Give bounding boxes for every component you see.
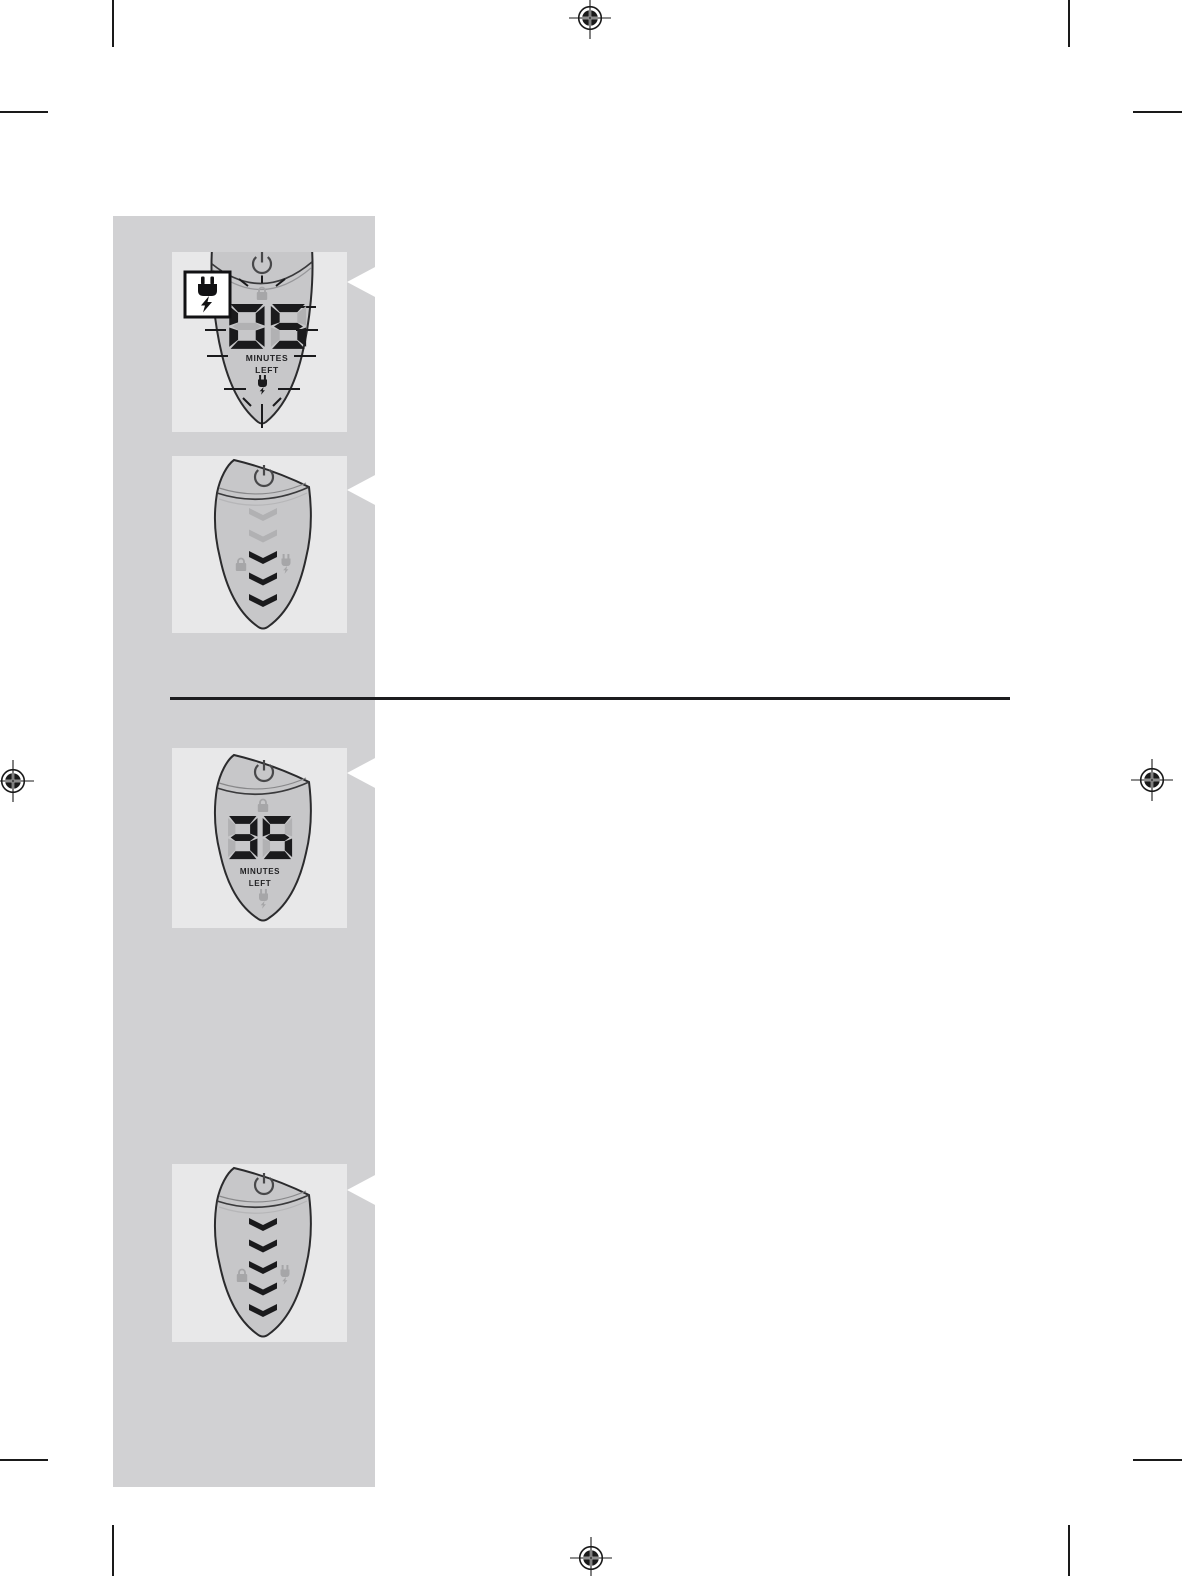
shaver-handle-illustration xyxy=(172,1164,347,1342)
section-divider-rule xyxy=(170,697,1010,700)
shaver-display-closeup-illustration: MINUTES LEFT xyxy=(172,252,347,432)
callout-pointer xyxy=(347,266,377,298)
minutes-label: MINUTES xyxy=(240,867,280,876)
left-label: LEFT xyxy=(255,365,279,375)
crop-mark-top-left-horizontal xyxy=(0,111,48,113)
crop-mark-top-left-vertical xyxy=(112,0,114,47)
minutes-label: MINUTES xyxy=(246,353,288,363)
crop-mark-bottom-right-vertical xyxy=(1068,1525,1070,1576)
illustration-charge-level-partial xyxy=(172,456,347,633)
crop-mark-bottom-left-vertical xyxy=(112,1525,114,1576)
registration-mark-bottom xyxy=(569,1536,613,1576)
left-label: LEFT xyxy=(249,879,271,888)
callout-pointer xyxy=(347,1174,377,1206)
illustration-display-flashing: MINUTES LEFT xyxy=(172,252,347,432)
illustration-display-35: MINUTES LEFT xyxy=(172,748,347,928)
callout-pointer xyxy=(347,757,377,789)
crop-mark-top-right-vertical xyxy=(1068,0,1070,47)
shaver-handle-illustration xyxy=(172,456,347,633)
shaver-display-illustration: MINUTES LEFT xyxy=(172,748,347,928)
registration-mark-left xyxy=(0,759,35,803)
callout-pointer xyxy=(347,474,377,506)
charge-badge xyxy=(185,272,230,317)
crop-mark-top-right-horizontal xyxy=(1133,111,1182,113)
crop-mark-bottom-left-horizontal xyxy=(0,1459,48,1461)
illustration-charge-level-full xyxy=(172,1164,347,1342)
registration-mark-right xyxy=(1130,758,1174,802)
crop-mark-bottom-right-horizontal xyxy=(1133,1459,1182,1461)
registration-mark-top xyxy=(568,0,612,40)
manual-page: MINUTES LEFT xyxy=(0,0,1182,1576)
